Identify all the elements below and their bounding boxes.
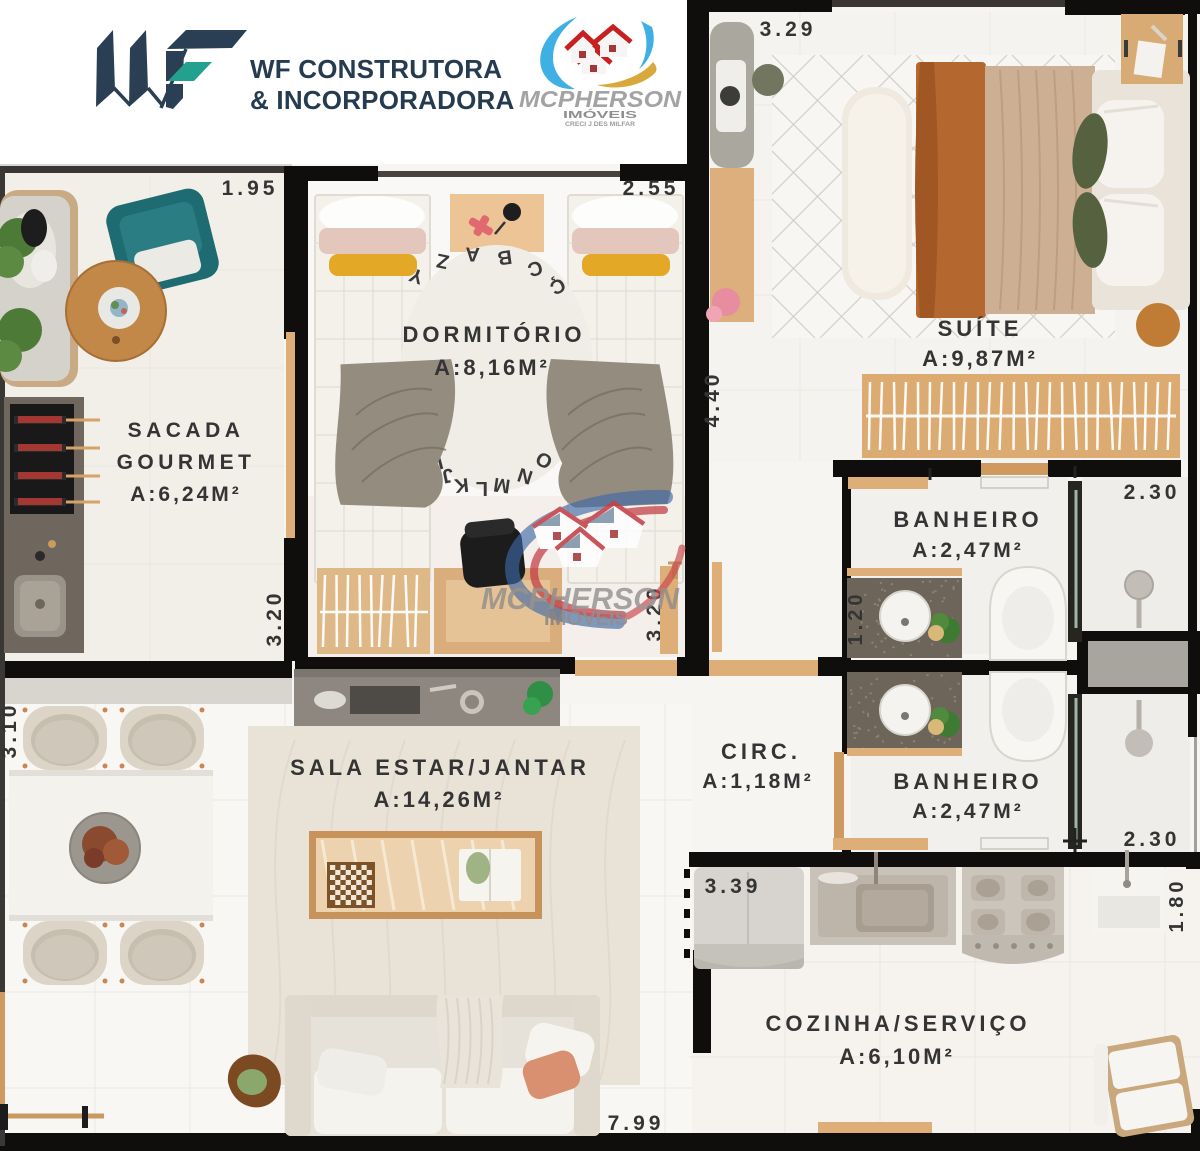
svg-text:7.99: 7.99 — [608, 1112, 665, 1135]
svg-text:CRECI J DES MILFAR: CRECI J DES MILFAR — [565, 121, 635, 128]
svg-text:CIRC.: CIRC. — [721, 739, 801, 764]
svg-text:3.20: 3.20 — [263, 590, 286, 647]
svg-text:B: B — [496, 245, 513, 269]
svg-text:2.30: 2.30 — [1124, 481, 1181, 504]
svg-text:2.55: 2.55 — [623, 177, 680, 200]
svg-text:3.39: 3.39 — [705, 875, 762, 898]
svg-text:GOURMET: GOURMET — [117, 451, 256, 474]
svg-text:SACADA: SACADA — [128, 419, 245, 442]
svg-text:SALA ESTAR/JANTAR: SALA ESTAR/JANTAR — [290, 755, 590, 780]
svg-text:3.29: 3.29 — [760, 18, 817, 41]
svg-text:DORMITÓRIO: DORMITÓRIO — [403, 322, 586, 347]
svg-text:A:6,24M²: A:6,24M² — [130, 483, 242, 506]
svg-text:& INCORPORADORA: & INCORPORADORA — [250, 85, 514, 115]
svg-text:SUÍTE: SUÍTE — [938, 316, 1023, 341]
svg-text:4.40: 4.40 — [701, 371, 724, 428]
svg-text:A:6,10M²: A:6,10M² — [839, 1044, 955, 1069]
svg-text:A:14,26M²: A:14,26M² — [374, 787, 505, 812]
svg-text:MCPHERSON: MCPHERSON — [519, 86, 681, 112]
svg-text:COZINHA/SERVIÇO: COZINHA/SERVIÇO — [766, 1011, 1031, 1036]
svg-text:L: L — [476, 477, 488, 499]
svg-text:A: A — [465, 242, 480, 264]
svg-text:2.30: 2.30 — [1124, 828, 1181, 851]
svg-text:1.80: 1.80 — [1166, 878, 1188, 933]
svg-text:3.10: 3.10 — [0, 702, 21, 759]
svg-text:A:8,16M²: A:8,16M² — [434, 355, 550, 380]
svg-text:M: M — [492, 473, 512, 497]
svg-text:IMÓVEIS: IMÓVEIS — [563, 108, 638, 121]
svg-text:BANHEIRO: BANHEIRO — [893, 507, 1042, 532]
svg-text:A:1,18M²: A:1,18M² — [702, 770, 814, 793]
svg-text:WF CONSTRUTORA: WF CONSTRUTORA — [250, 54, 502, 84]
svg-text:1.95: 1.95 — [222, 177, 279, 200]
svg-text:1.20: 1.20 — [845, 591, 867, 646]
svg-text:IMÓVEIS: IMÓVEIS — [544, 606, 628, 630]
svg-text:A:2,47M²: A:2,47M² — [912, 539, 1024, 562]
svg-text:K: K — [453, 473, 470, 496]
svg-text:BANHEIRO: BANHEIRO — [893, 769, 1042, 794]
svg-text:A:9,87M²: A:9,87M² — [922, 346, 1038, 371]
svg-text:A:2,47M²: A:2,47M² — [912, 800, 1024, 823]
